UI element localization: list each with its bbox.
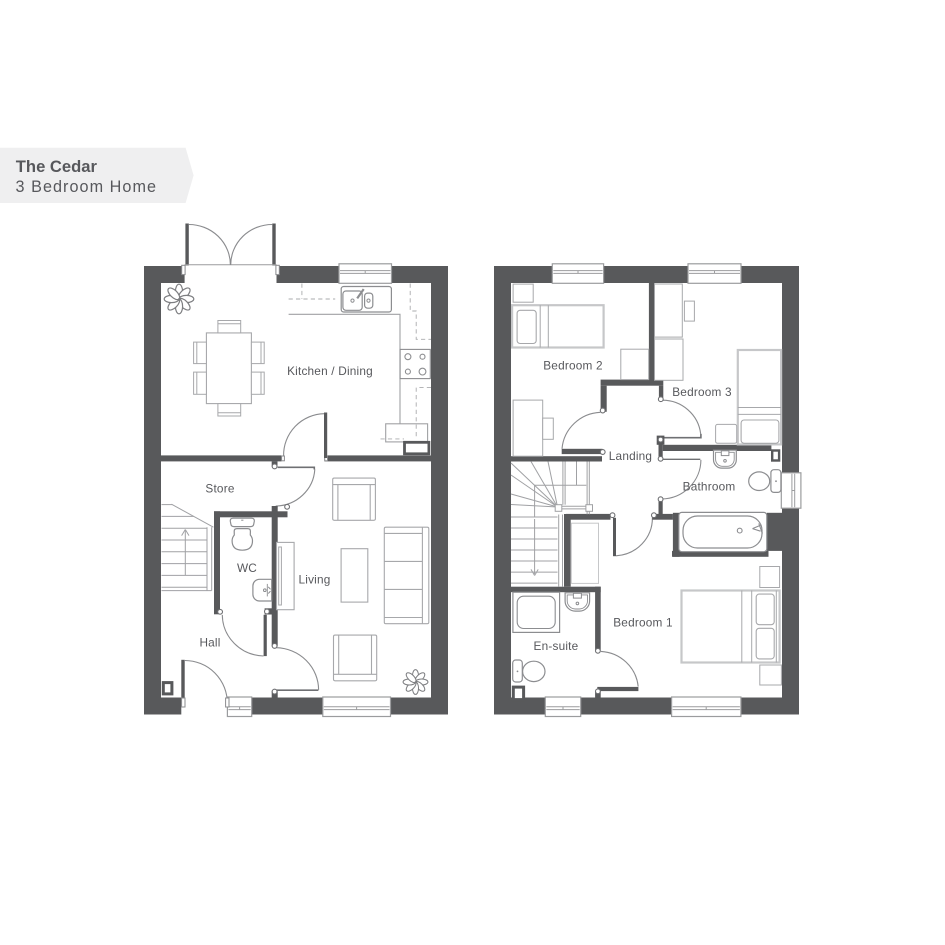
- svg-text:Bedroom 1: Bedroom 1: [613, 615, 673, 629]
- svg-text:Bedroom 3: Bedroom 3: [672, 385, 732, 399]
- svg-text:Bedroom 2: Bedroom 2: [543, 358, 603, 372]
- svg-text:Living: Living: [298, 572, 330, 586]
- svg-text:The Cedar: The Cedar: [16, 157, 98, 176]
- svg-text:Landing: Landing: [609, 449, 652, 463]
- svg-text:Bathroom: Bathroom: [683, 479, 736, 493]
- svg-text:WC: WC: [237, 561, 257, 575]
- svg-text:Kitchen / Dining: Kitchen / Dining: [287, 364, 373, 378]
- svg-text:Hall: Hall: [199, 635, 220, 649]
- svg-text:En-suite: En-suite: [534, 639, 579, 653]
- svg-text:Store: Store: [205, 481, 234, 495]
- svg-text:3 Bedroom Home: 3 Bedroom Home: [16, 178, 158, 196]
